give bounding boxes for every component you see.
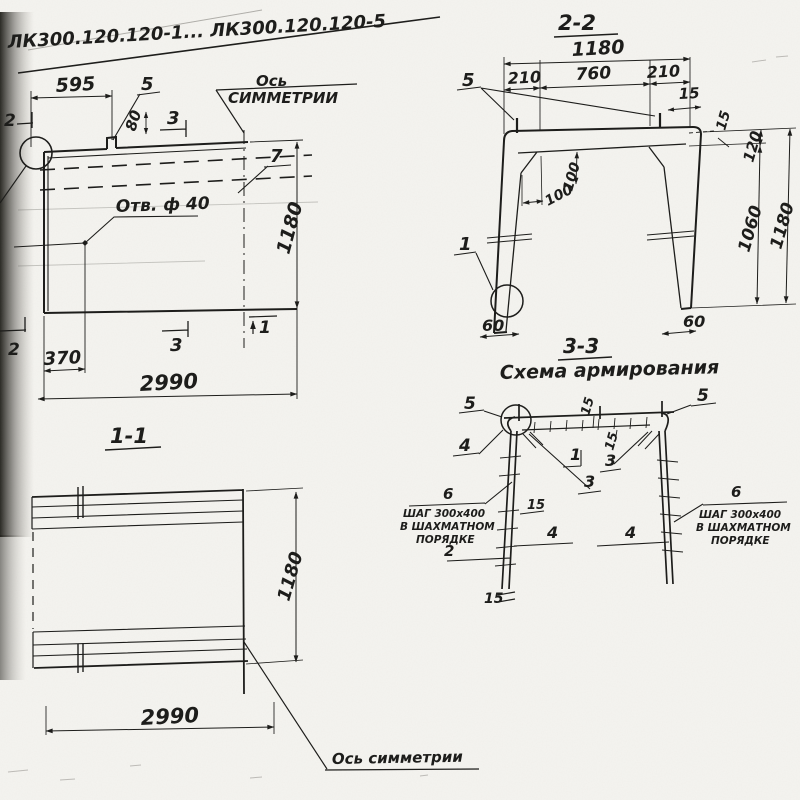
section33-title: 3-3 [563, 334, 599, 358]
armature-label4-topleft-text: 4 [458, 436, 471, 456]
armature-note-right-line1: ШАГ 300х400 [699, 509, 781, 521]
section22-dim760-text: 760 [575, 63, 612, 85]
paper-noise [0, 0, 800, 800]
armature-label2-text: 2 [444, 542, 454, 560]
plan-mark2-bottom-text: 2 [8, 340, 20, 360]
section22-dim15-top-text: 15 [678, 84, 700, 103]
armature-note-left-line1: ШАГ 300х400 [403, 508, 485, 520]
plan-hole-note: Отв. ф 40 [115, 194, 210, 217]
section22-dim1180-top-text: 1180 [571, 36, 625, 61]
plan-mark2-top-text: 2 [4, 111, 16, 131]
section22-dim60l-text: 60 [482, 316, 504, 335]
plan-mark3-top-text: 3 [167, 108, 180, 129]
armature-label6-right-text: 6 [731, 483, 741, 501]
armature-label4-midright-text: 4 [624, 523, 636, 542]
plan-dim2990-text: 2990 [139, 369, 199, 396]
armature-label3a-text: 3 [605, 451, 616, 470]
plan-label5-text: 5 [141, 74, 154, 95]
section22-label1-text: 1 [459, 234, 472, 255]
scan-artifacts [0, 0, 800, 800]
plan-label7-text: 7 [270, 146, 283, 167]
plan-dim595-text: 595 [55, 73, 96, 97]
armature-label1-text: 1 [570, 445, 581, 464]
armature-note-right-line3: ПОРЯДКЕ [711, 535, 770, 547]
armature-note-right-line2: В ШАХМАТНОМ [696, 522, 791, 534]
drawing-canvas: ЛК300.120.120-1... ЛК300.120.120-5 Отв. … [0, 0, 800, 800]
armature-note-left-line2: В ШАХМАТНОМ [400, 521, 495, 533]
plan-axis-label-line2: СИММЕТРИИ [228, 89, 338, 107]
plan-mark1-text: 1 [259, 318, 271, 338]
plan-dim370-text: 370 [43, 347, 82, 370]
armature-label6-left-text: 6 [443, 485, 453, 503]
section22-dim210r-text: 210 [646, 61, 680, 82]
armature-label4-midleft-text: 4 [546, 523, 558, 542]
plan-mark3-bottom-text: 3 [170, 335, 183, 356]
section22-title: 2-2 [558, 11, 596, 35]
section11-dim2990-text: 2990 [140, 703, 200, 730]
section22-dim210l-text: 210 [507, 67, 541, 88]
section11-title: 1-1 [110, 424, 148, 448]
armature-dim15-bottom-text: 15 [484, 591, 504, 607]
section22-dim60r-text: 60 [683, 312, 705, 331]
armature-label5-right-text: 5 [697, 386, 709, 406]
scanned-blueprint-sheet: ЛК300.120.120-1... ЛК300.120.120-5 Отв. … [0, 0, 800, 800]
section11-axis-note: Ось симметрии [332, 748, 464, 768]
